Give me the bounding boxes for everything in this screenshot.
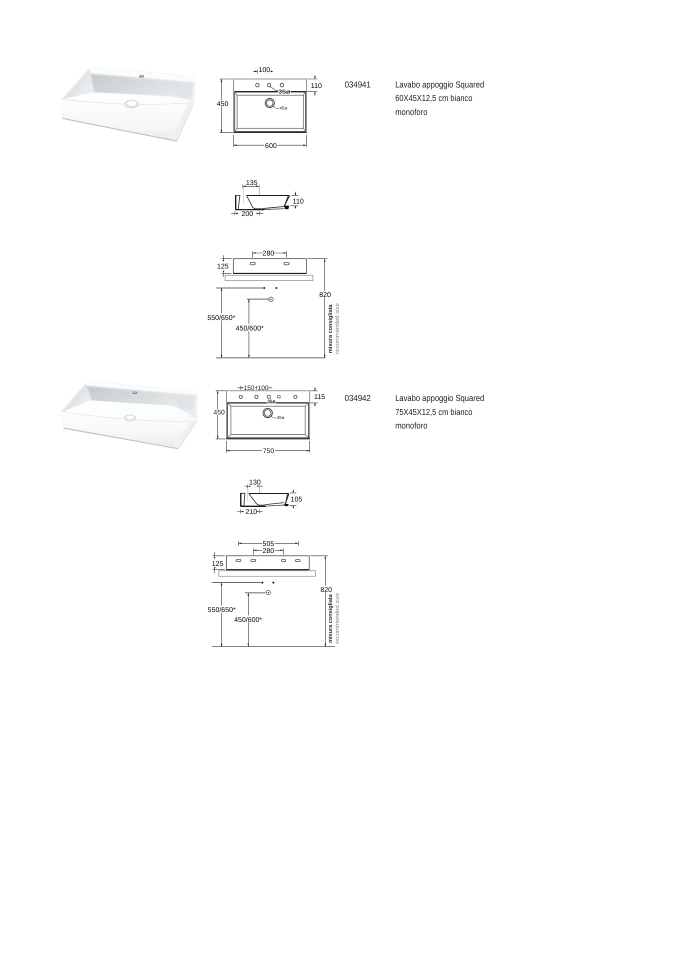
svg-text:750: 750 (263, 448, 275, 455)
svg-text:034942: 034942 (345, 393, 371, 403)
svg-text:505: 505 (263, 541, 275, 548)
svg-text:550/650*: 550/650* (207, 314, 235, 322)
svg-text:Lavabo appoggio Squared: Lavabo appoggio Squared (395, 79, 484, 89)
svg-text:35ø: 35ø (278, 89, 291, 95)
svg-text:60X45X12,5 cm bianco: 60X45X12,5 cm bianco (395, 93, 472, 103)
svg-text:034941: 034941 (345, 79, 371, 89)
svg-text:100: 100 (258, 67, 270, 74)
svg-text:45ø: 45ø (280, 105, 288, 110)
svg-text:135: 135 (246, 180, 258, 187)
svg-text:35ø: 35ø (267, 399, 275, 405)
svg-text:280: 280 (263, 251, 275, 258)
svg-text:820: 820 (320, 587, 332, 594)
svg-text:150: 150 (244, 385, 255, 392)
svg-text:monoforo: monoforo (395, 421, 427, 431)
svg-text:110: 110 (293, 199, 304, 206)
svg-text:125: 125 (217, 263, 229, 270)
svg-text:280: 280 (262, 548, 274, 555)
svg-text:210: 210 (245, 509, 257, 516)
svg-text:110: 110 (311, 83, 322, 90)
svg-text:misura consigliata: misura consigliata (327, 593, 334, 642)
svg-text:450/600*: 450/600* (234, 616, 262, 624)
svg-text:Lavabo appoggio Squared: Lavabo appoggio Squared (395, 393, 484, 403)
svg-text:550/650*: 550/650* (208, 606, 236, 614)
svg-text:recommended size: recommended size (334, 303, 341, 354)
svg-text:100: 100 (258, 385, 269, 392)
svg-text:450/600*: 450/600* (236, 325, 264, 333)
svg-text:820: 820 (319, 292, 331, 299)
svg-text:115: 115 (314, 394, 325, 401)
svg-text:105: 105 (291, 496, 303, 503)
svg-text:200: 200 (241, 211, 253, 218)
svg-text:450: 450 (213, 410, 225, 417)
svg-text:misura consigliata: misura consigliata (327, 304, 334, 353)
svg-text:130: 130 (249, 480, 261, 487)
svg-text:recommended size: recommended size (334, 593, 341, 644)
svg-text:75X45X12,5 cm bianco: 75X45X12,5 cm bianco (395, 407, 472, 417)
svg-text:45ø: 45ø (277, 415, 285, 420)
svg-text:450: 450 (217, 101, 229, 108)
svg-text:125: 125 (212, 561, 224, 568)
svg-text:600: 600 (265, 143, 277, 150)
svg-text:monoforo: monoforo (395, 107, 427, 117)
